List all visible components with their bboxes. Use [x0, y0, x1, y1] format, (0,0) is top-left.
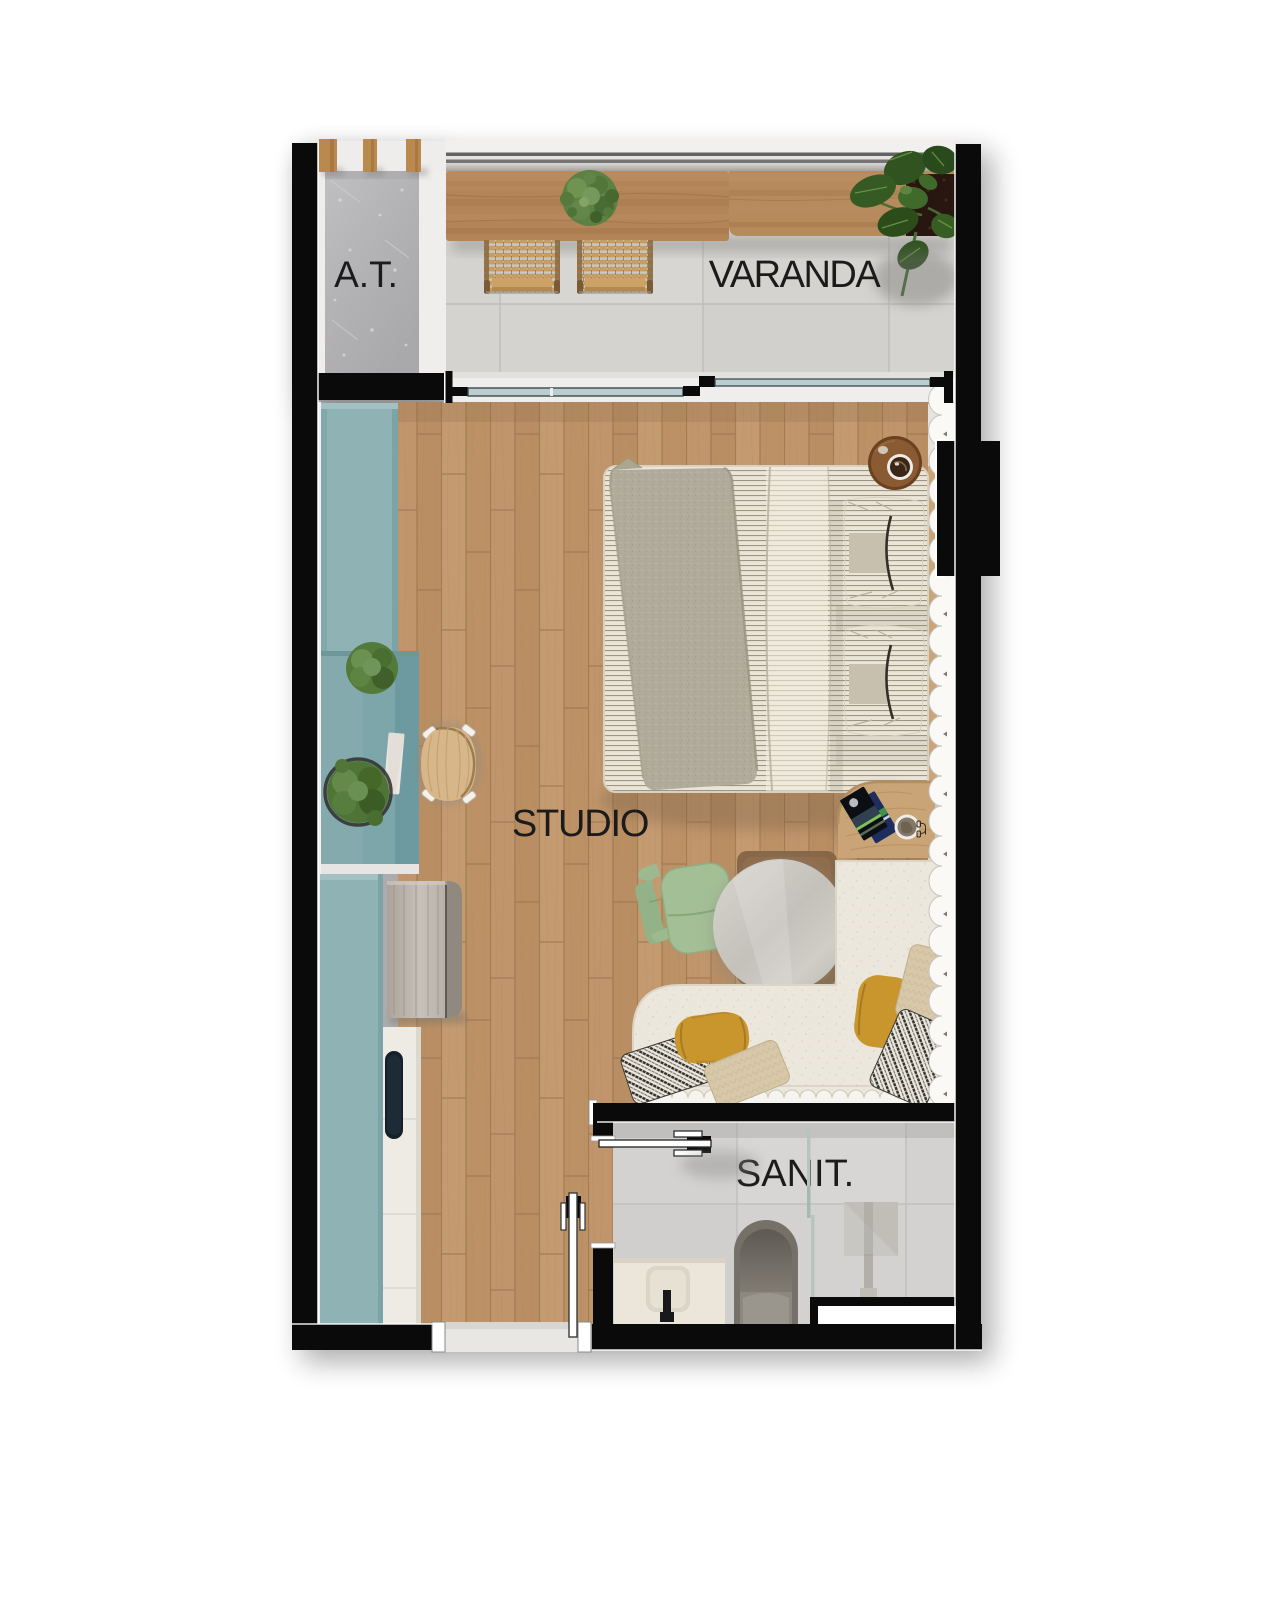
svg-text:VARANDA: VARANDA [709, 254, 882, 296]
svg-text:A.T.: A.T. [334, 254, 398, 295]
svg-text:STUDIO: STUDIO [512, 803, 648, 845]
